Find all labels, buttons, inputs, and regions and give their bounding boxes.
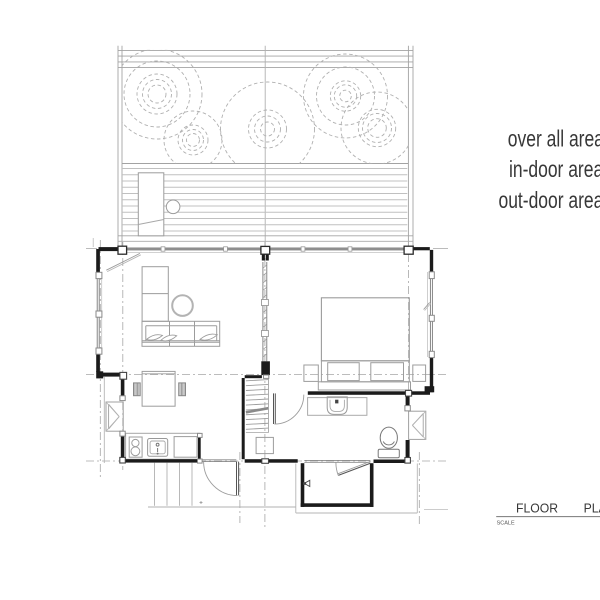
svg-text:PLAN: PLAN — [584, 501, 600, 515]
svg-text:FLOOR: FLOOR — [516, 501, 558, 515]
svg-text:SCALE: SCALE — [497, 521, 515, 527]
svg-text:over all area: over all area — [508, 127, 600, 152]
svg-text:in-door area: in-door area — [509, 158, 600, 183]
svg-text:out-door area: out-door area — [499, 189, 600, 214]
